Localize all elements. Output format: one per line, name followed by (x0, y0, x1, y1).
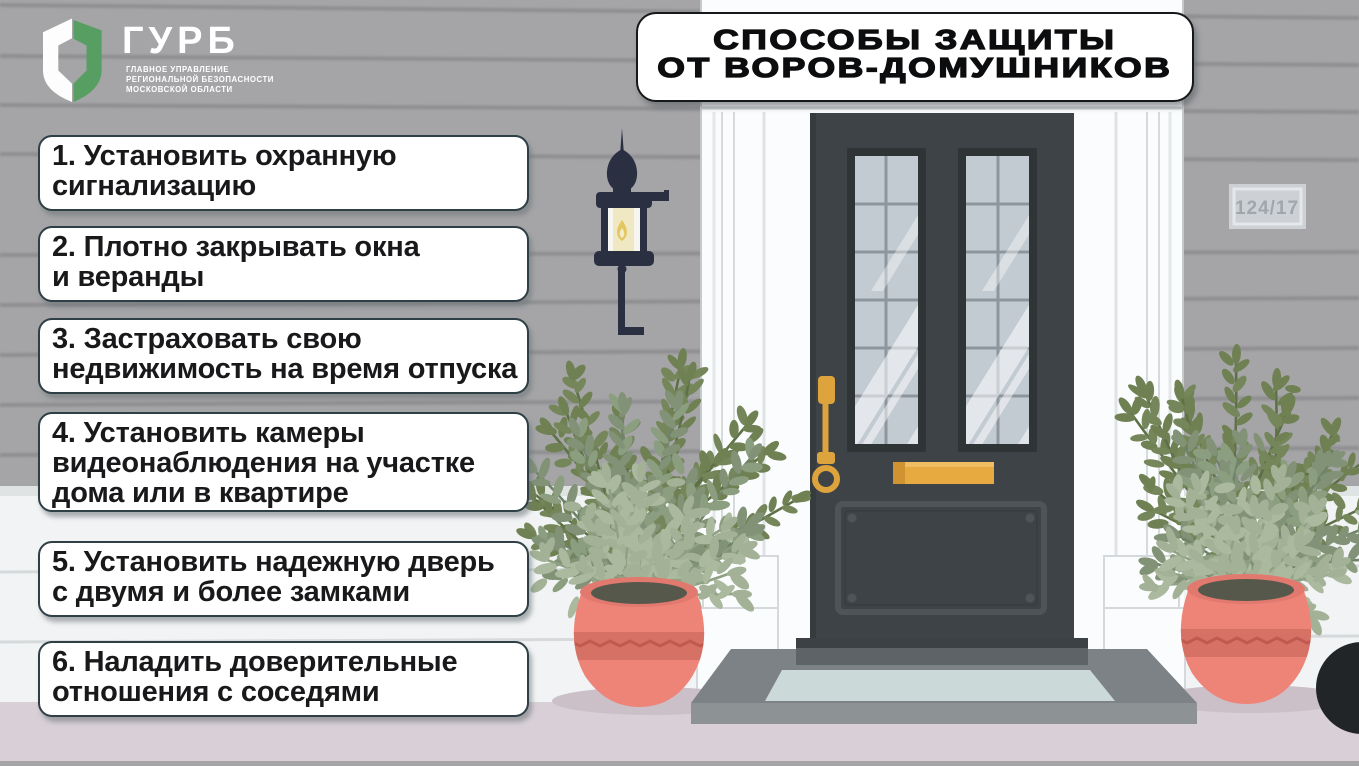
svg-text:124/17: 124/17 (1235, 198, 1299, 219)
